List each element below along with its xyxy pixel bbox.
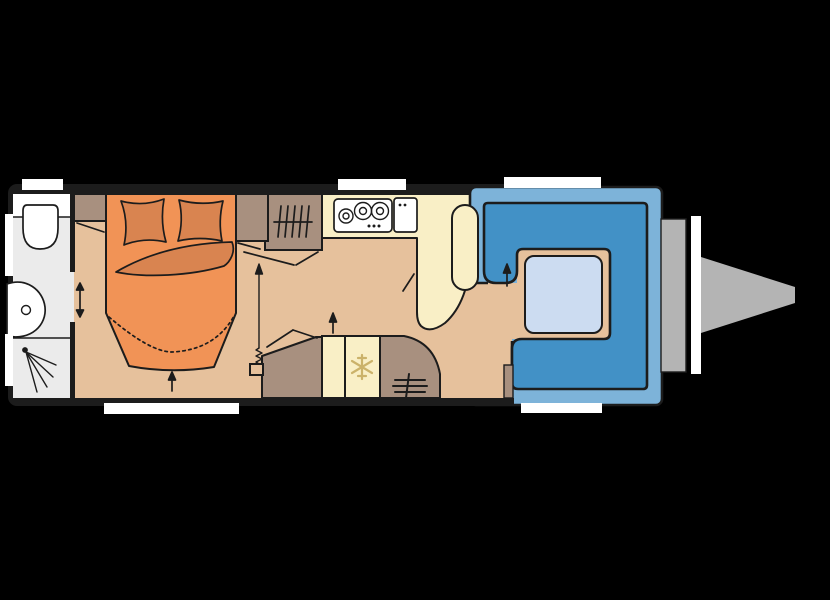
counter-end-seat — [452, 205, 478, 290]
cabinet-strip — [322, 336, 345, 398]
window-bottom-dinette — [521, 403, 602, 413]
floorplan-canvas — [0, 0, 830, 600]
hitch-base — [661, 219, 686, 372]
bathroom-wall-lower — [70, 322, 75, 398]
tv-bracket — [250, 364, 263, 375]
window-rear-upper — [5, 214, 13, 276]
drawbar-triangle — [701, 257, 795, 333]
pillow-left — [121, 199, 166, 245]
dinette — [462, 187, 662, 406]
entry-partition — [504, 365, 513, 398]
basin-drain — [22, 306, 31, 315]
caravan-floorplan — [0, 0, 830, 600]
pillow-right — [178, 200, 223, 241]
window-bottom-bedroom — [104, 403, 239, 414]
toilet-icon — [23, 205, 58, 249]
bathroom — [7, 194, 84, 398]
hitch-bar — [691, 216, 701, 374]
sink-icon — [394, 198, 417, 232]
hitch — [661, 216, 795, 374]
window-rear-lower — [5, 334, 13, 386]
entry-wall-patch — [462, 398, 514, 406]
window-top-kitchen — [338, 179, 406, 190]
wardrobe-right — [236, 194, 268, 241]
wardrobe-left — [74, 194, 106, 221]
window-top-bathroom — [22, 179, 63, 190]
window-top-dinette — [504, 177, 601, 188]
stove-knob-dots — [368, 225, 381, 228]
dinette-table — [525, 256, 602, 333]
